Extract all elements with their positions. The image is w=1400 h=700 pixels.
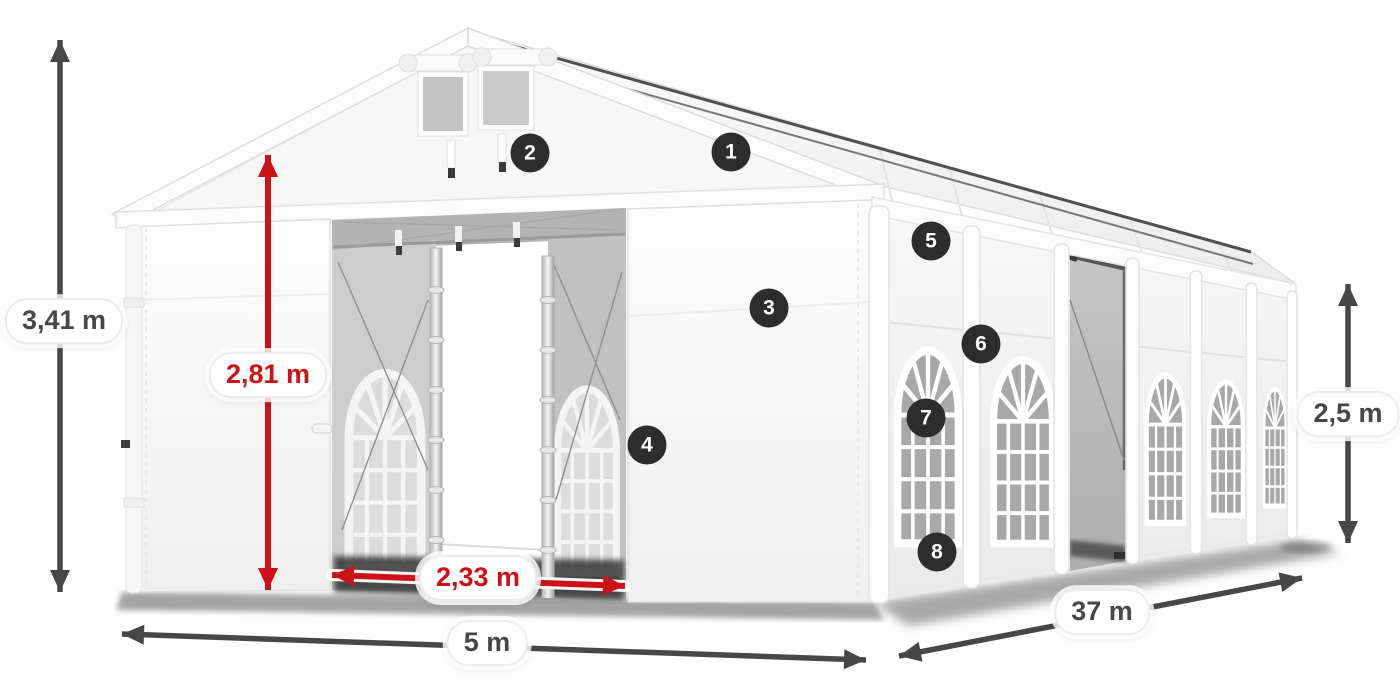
marker-4: 4	[628, 426, 667, 465]
marker-6: 6	[962, 325, 1001, 364]
dimension-total-height: 3,41 m	[5, 298, 123, 344]
dimension-value: 2,33 m	[436, 562, 520, 592]
front-entrance-interior	[332, 208, 626, 604]
dimension-value: 5 m	[464, 627, 511, 657]
side-window	[1147, 375, 1185, 523]
interior-window	[349, 373, 421, 567]
door-tie	[312, 424, 332, 433]
marker-3: 3	[750, 289, 789, 328]
side-window	[898, 351, 958, 544]
marker-2: 2	[511, 134, 550, 173]
marker-5: 5	[912, 222, 951, 261]
dimension-entrance-width: 2,33 m	[419, 555, 537, 601]
interior-window	[558, 389, 617, 573]
dimension-length: 37 m	[1054, 589, 1150, 635]
front-wall-left-panel	[121, 219, 332, 593]
dimension-value: 2,81 m	[226, 359, 310, 389]
dimension-inner-height: 2,81 m	[209, 352, 327, 398]
dimension-side-height: 2,5 m	[1296, 391, 1399, 437]
marker-1: 1	[712, 133, 751, 172]
dimension-front-width: 5 m	[447, 620, 528, 666]
tent-illustration	[0, 0, 1400, 700]
gable-window-left	[418, 72, 468, 136]
side-window	[1264, 389, 1286, 506]
marker-7: 7	[907, 399, 946, 438]
side-window	[994, 360, 1053, 544]
front-wall-right-panel	[628, 200, 872, 602]
gable-roller-right	[473, 48, 557, 66]
side-window	[1209, 382, 1243, 515]
marker-8: 8	[918, 533, 957, 572]
gable-window-right	[478, 66, 534, 130]
tent-dimensions-diagram: 3,41 m 2,81 m 2,33 m 5 m 37 m 2,5 m 1 2 …	[0, 0, 1400, 700]
gable-roller-left	[399, 54, 477, 72]
dimension-value: 37 m	[1071, 596, 1133, 626]
side-entrance-opening	[1060, 246, 1128, 571]
dimension-value: 2,5 m	[1313, 398, 1382, 428]
dimension-value: 3,41 m	[22, 305, 106, 335]
